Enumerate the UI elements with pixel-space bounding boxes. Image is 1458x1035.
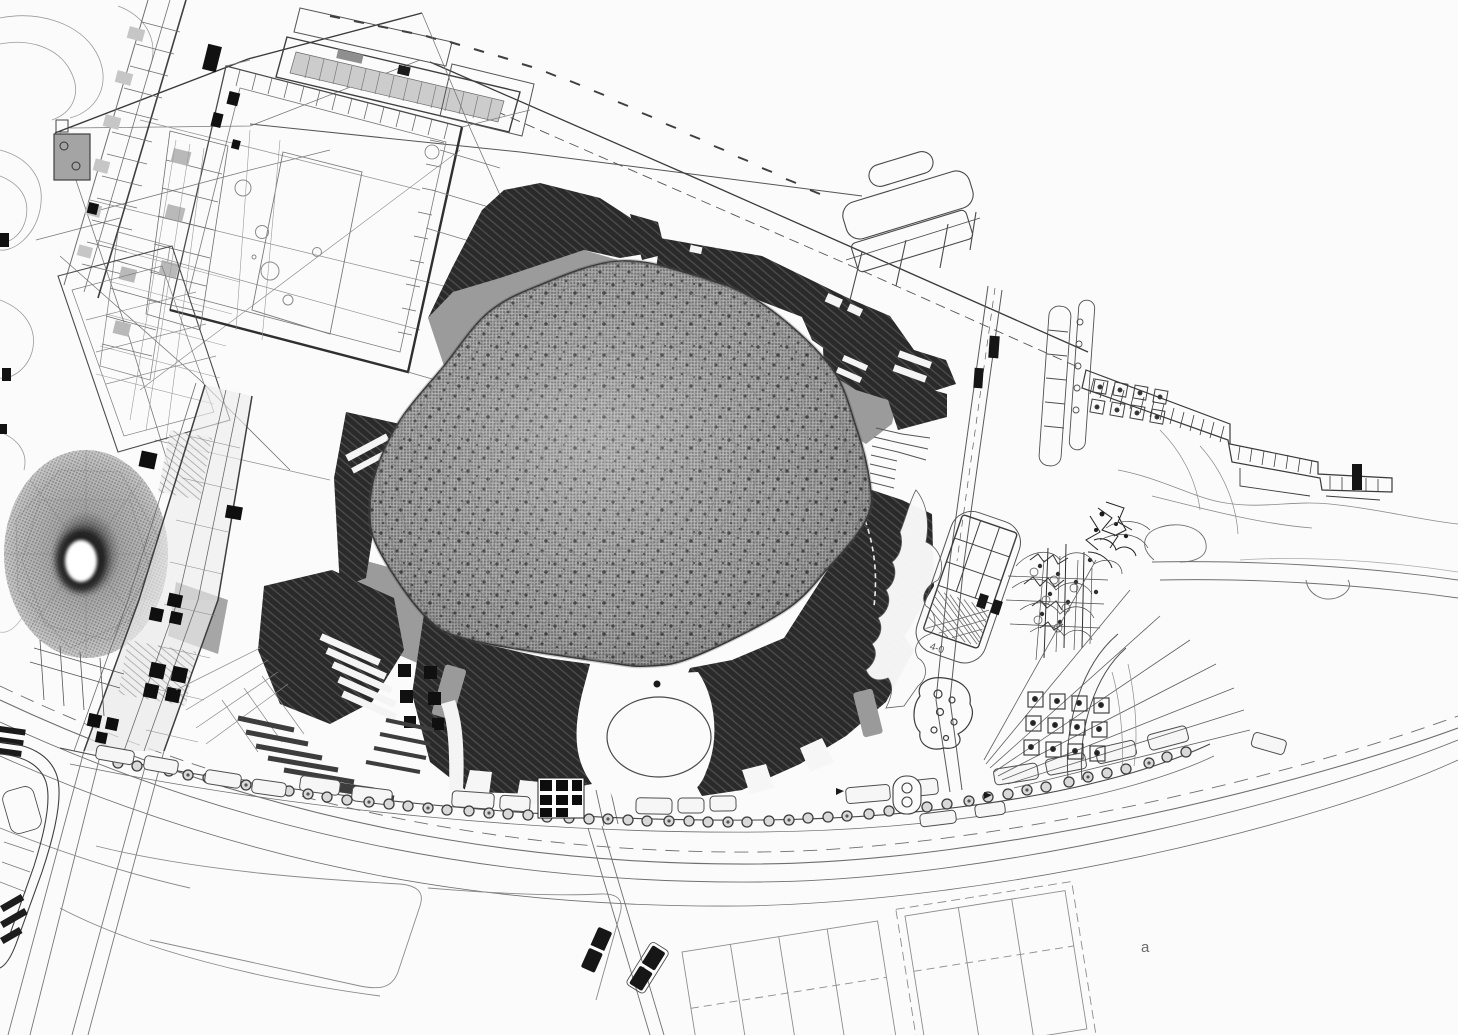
svg-text:a: a — [1141, 939, 1150, 956]
